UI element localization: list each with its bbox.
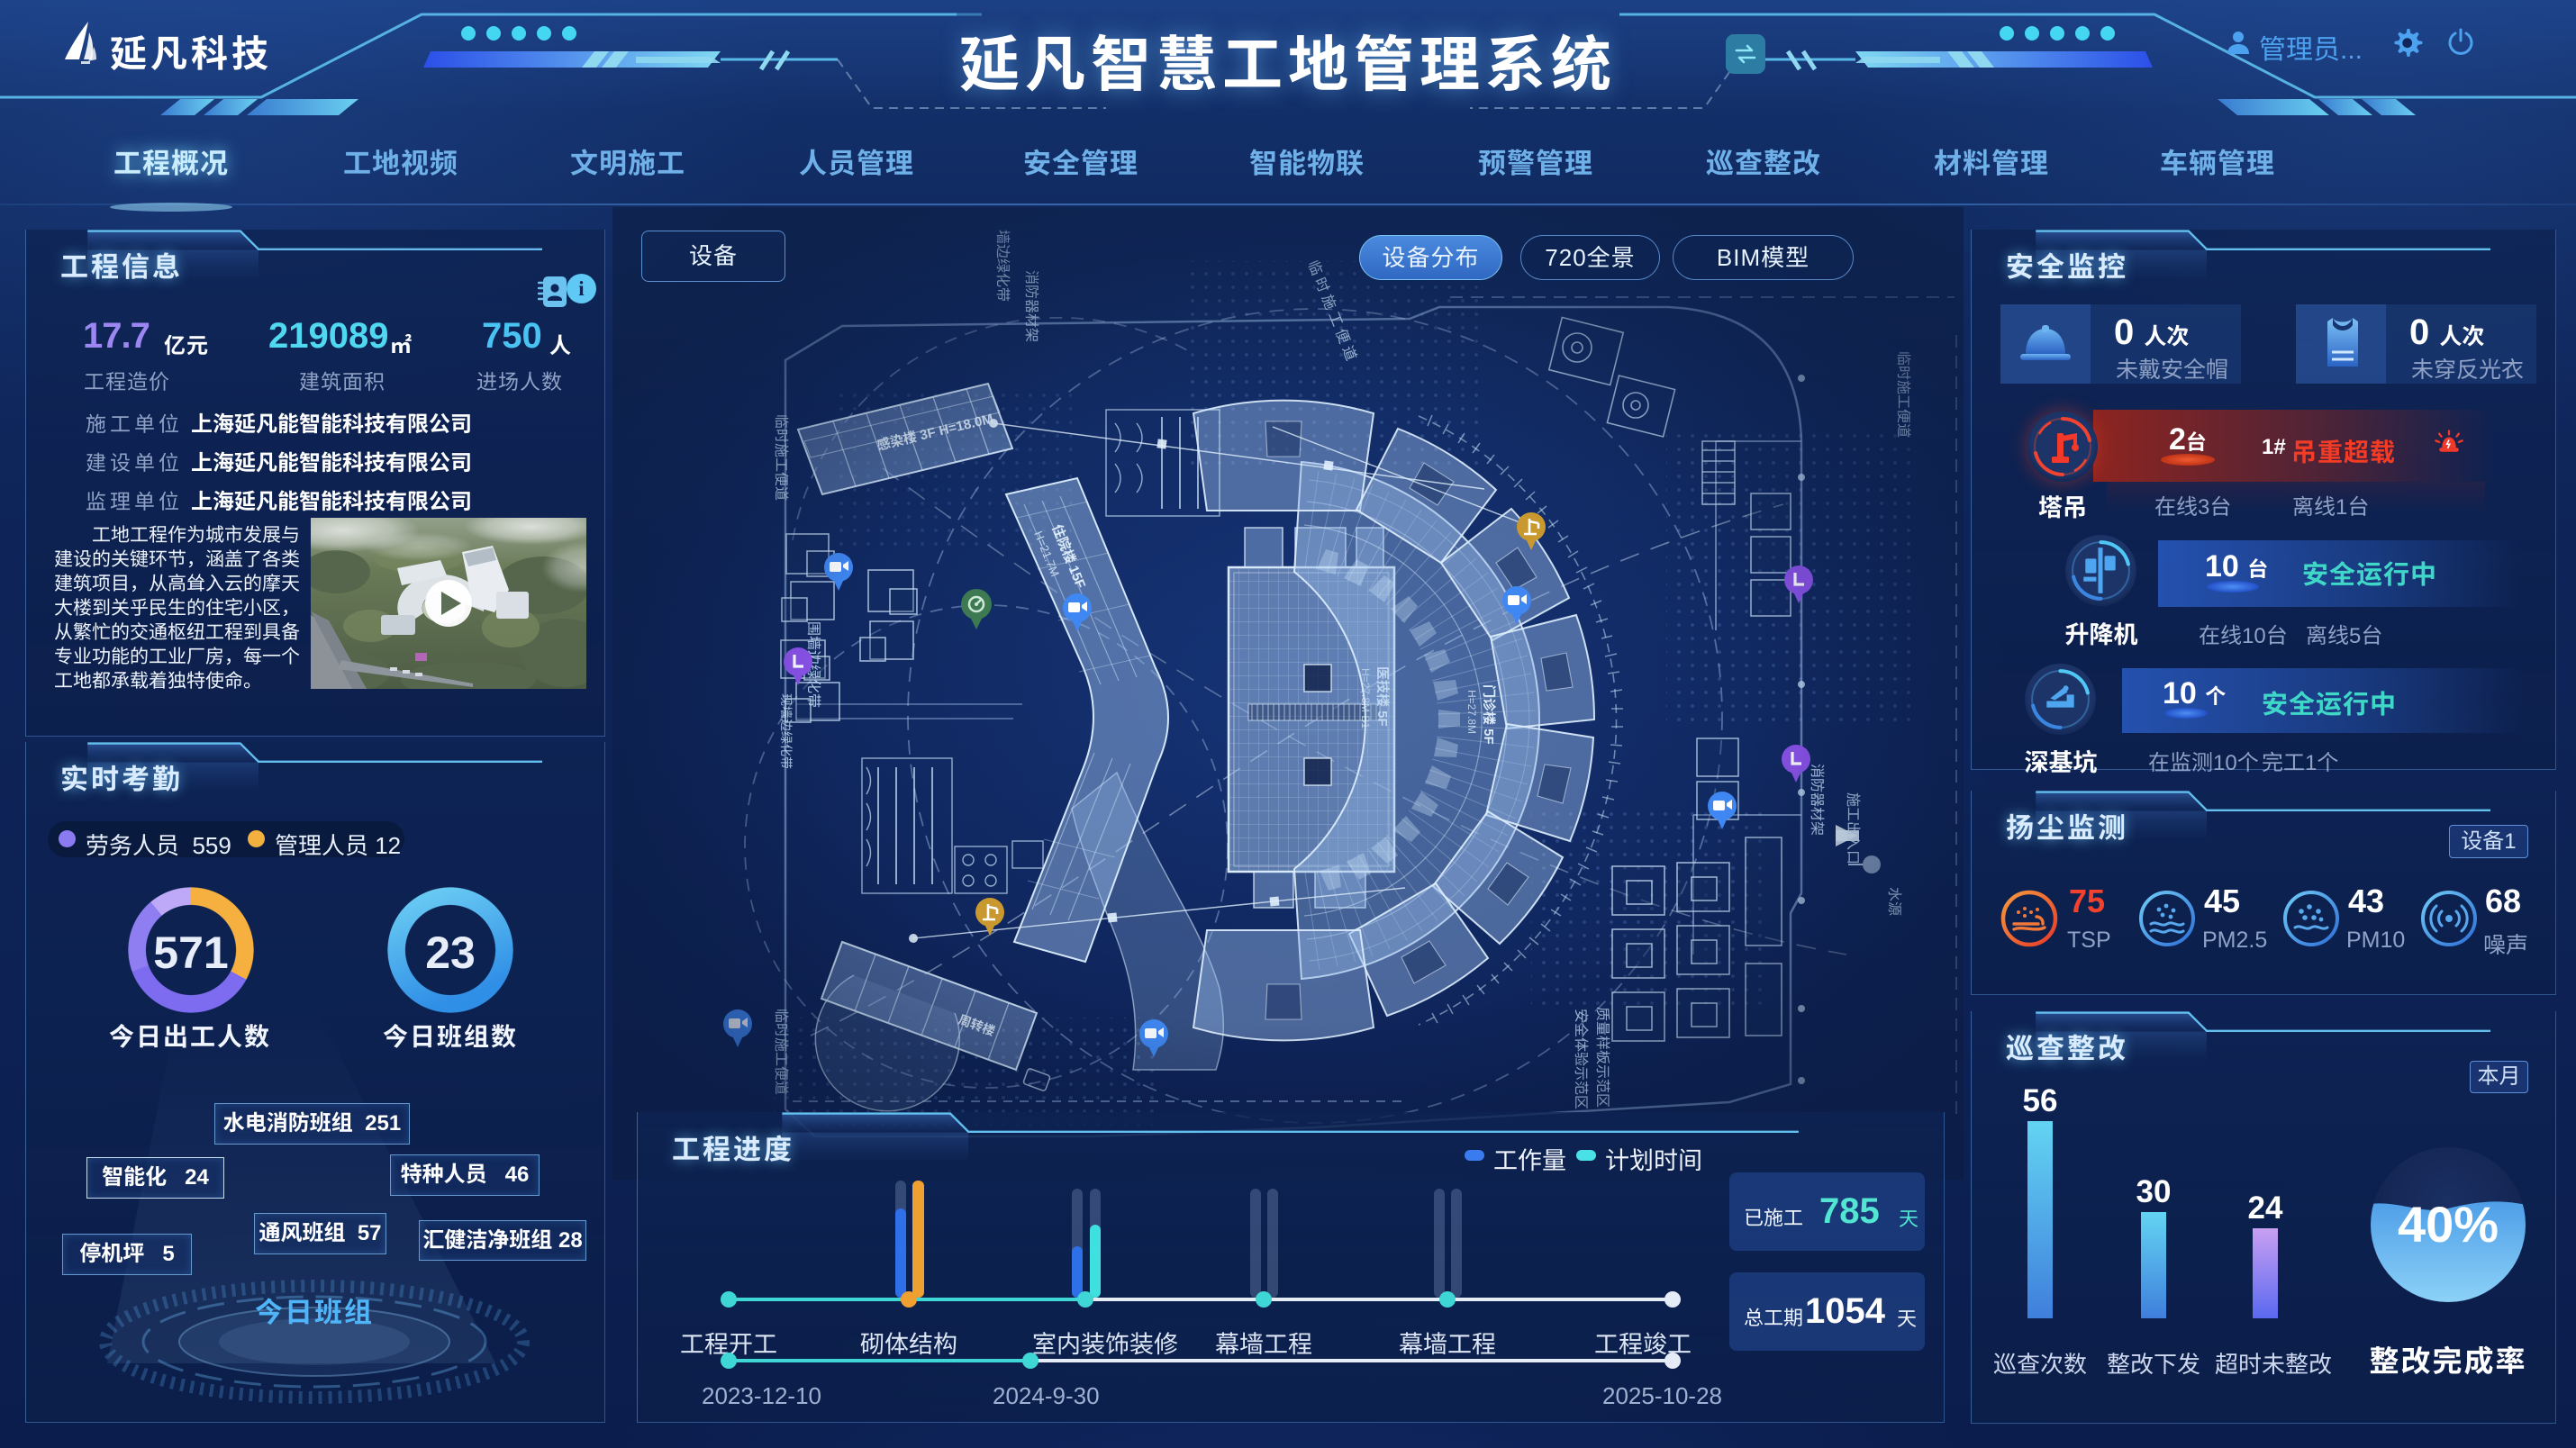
svg-text:消防器材架: 消防器材架 [1809, 764, 1825, 836]
svg-text:消防器材架: 消防器材架 [1023, 270, 1039, 342]
svg-text:施工出入口: 施工出入口 [1845, 792, 1861, 864]
svg-text:门诊楼 5F: 门诊楼 5F [1481, 684, 1496, 745]
svg-text:临时施工便道: 临时施工便道 [773, 1009, 789, 1095]
svg-text:质量样板示范区: 质量样板示范区 [1594, 1007, 1610, 1108]
svg-text:临时施工便道: 临时施工便道 [773, 414, 789, 501]
svg-text:H=27.8M: H=27.8M [1465, 690, 1478, 734]
svg-text:墙边绿化带: 墙边绿化带 [994, 230, 1011, 302]
svg-text:水源: 水源 [1886, 887, 1902, 916]
svg-text:安全体验示范区: 安全体验示范区 [1573, 1009, 1589, 1109]
svg-text:临时施工便道: 临时施工便道 [1895, 351, 1911, 438]
svg-text:现墙边绿化带: 现墙边绿化带 [779, 693, 794, 769]
